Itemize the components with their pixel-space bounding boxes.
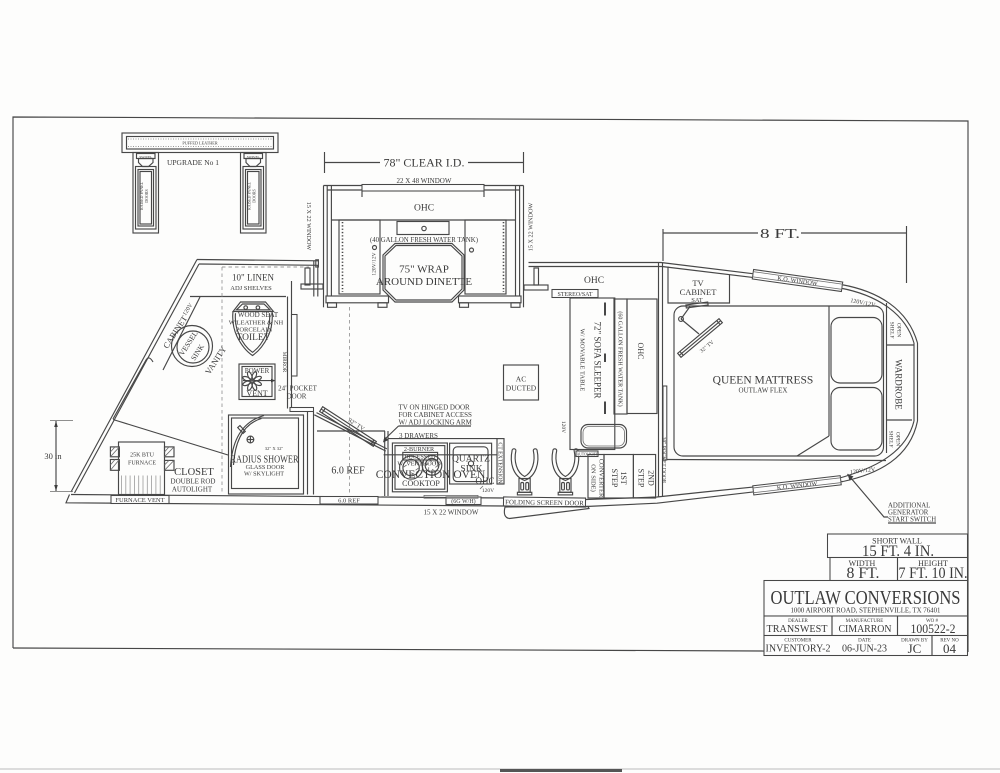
svg-text:OPEN: OPEN — [896, 323, 902, 337]
svg-text:PUFFED LEATHER: PUFFED LEATHER — [182, 141, 217, 146]
svg-text:SINK: SINK — [460, 465, 482, 475]
svg-text:OHC: OHC — [414, 204, 434, 214]
svg-text:ON SIDE): ON SIDE) — [590, 464, 597, 492]
svg-text:8 FT.: 8 FT. — [847, 565, 880, 582]
svg-text:DOUBLE ROD: DOUBLE ROD — [171, 478, 216, 486]
svg-text:8 FT.: 8 FT. — [760, 227, 800, 242]
svg-text:2ND: 2ND — [647, 470, 656, 486]
svg-text:78" CLEAR I.D.: 78" CLEAR I.D. — [384, 158, 465, 170]
svg-text:STEP: STEP — [610, 469, 619, 488]
svg-text:COOKTOP: COOKTOP — [402, 479, 440, 488]
svg-text:SHELF: SHELF — [889, 322, 895, 339]
svg-text:(60 GALLON FRESH WATER TANK): (60 GALLON FRESH WATER TANK) — [617, 311, 624, 406]
svg-text:OUTLAW FLEX: OUTLAW FLEX — [739, 387, 788, 395]
svg-text:120V: 120V — [482, 488, 494, 494]
svg-text:TRANSWEST: TRANSWEST — [767, 623, 828, 635]
svg-text:W/ SKYLIGHT: W/ SKYLIGHT — [244, 471, 284, 478]
svg-text:QUEEN MATTRESS: QUEEN MATTRESS — [713, 375, 814, 387]
svg-text:DOORS: DOORS — [252, 189, 257, 203]
svg-text:120V/12V: 120V/12V — [372, 252, 378, 275]
svg-text:OHC: OHC — [475, 476, 494, 486]
svg-text:FURNACE: FURNACE — [128, 461, 156, 467]
svg-text:INVENTORY-2: INVENTORY-2 — [766, 643, 831, 655]
svg-text:72" SOFA SLEEPER: 72" SOFA SLEEPER — [593, 321, 603, 398]
svg-text:OPEN: OPEN — [895, 432, 901, 446]
svg-text:3 DRAWERS: 3 DRAWERS — [399, 432, 438, 440]
svg-text:JC: JC — [908, 641, 922, 656]
svg-text:W/LEATHER & NH: W/LEATHER & NH — [229, 320, 284, 327]
svg-text:AROUND DINETTE: AROUND DINETTE — [376, 276, 473, 288]
svg-text:24" POCKET: 24" POCKET — [278, 385, 318, 393]
svg-text:W/ ADJ LOCKING ARM: W/ ADJ LOCKING ARM — [399, 419, 473, 427]
svg-text:1000 AIRPORT ROAD, STEPHENVILL: 1000 AIRPORT ROAD, STEPHENVILLE, TX 7640… — [791, 606, 941, 615]
svg-text:RECESSED: RECESSED — [405, 453, 436, 460]
svg-text:W/ VENTHOOD: W/ VENTHOOD — [397, 461, 441, 468]
svg-text:TOILET: TOILET — [236, 333, 269, 343]
svg-text:AC: AC — [516, 375, 526, 384]
svg-text:CIMARRON: CIMARRON — [839, 623, 892, 635]
svg-text:STEREO/SAT: STEREO/SAT — [557, 292, 592, 298]
svg-text:ADJ SHELVES: ADJ SHELVES — [230, 285, 272, 292]
svg-text:32" X 32": 32" X 32" — [265, 446, 284, 451]
svg-text:1ST: 1ST — [619, 471, 628, 484]
svg-text:120V: 120V — [560, 421, 566, 433]
svg-text:DOORS: DOORS — [144, 189, 149, 203]
svg-text:AUTOLIGHT: AUTOLIGHT — [172, 486, 213, 494]
svg-text:(6G W/H): (6G W/H) — [451, 498, 475, 505]
svg-text:W/ MOVABLE TABLE: W/ MOVABLE TABLE — [579, 329, 586, 392]
svg-text:DOOR: DOOR — [287, 393, 307, 401]
svg-text:WARDROBE: WARDROBE — [894, 359, 904, 410]
svg-text:OHC: OHC — [636, 343, 645, 360]
svg-text:OHC: OHC — [584, 276, 604, 286]
svg-text:100522-2: 100522-2 — [911, 621, 956, 636]
svg-text:FURNACE VENT: FURNACE VENT — [115, 497, 164, 504]
svg-text:MIRROR: MIRROR — [281, 352, 287, 373]
svg-text:15 X 22 WINDOW: 15 X 22 WINDOW — [305, 202, 312, 251]
svg-text:CT EXTENSION: CT EXTENSION — [497, 442, 503, 484]
svg-text:DUCTED: DUCTED — [506, 384, 537, 393]
svg-text:GENERATOR: GENERATOR — [888, 510, 929, 517]
svg-text:10" LINEN: 10" LINEN — [232, 273, 274, 283]
svg-text:22 X 48 WINDOW: 22 X 48 WINDOW — [397, 177, 452, 185]
svg-text:6.0 REF: 6.0 REF — [338, 498, 360, 505]
svg-text:75" WRAP: 75" WRAP — [399, 264, 449, 276]
svg-text:CLOSET: CLOSET — [174, 467, 214, 478]
svg-text:06-JUN-23: 06-JUN-23 — [842, 643, 887, 655]
svg-text:CABINET: CABINET — [680, 287, 718, 297]
svg-text:15 X 22 WINDOW: 15 X 22 WINDOW — [528, 203, 535, 252]
svg-text:30" POCKET DOOR: 30" POCKET DOOR — [660, 437, 666, 484]
svg-text:04: 04 — [943, 641, 957, 656]
svg-text:WOOD SEAT: WOOD SEAT — [238, 311, 279, 319]
svg-text:UPGRADE No 1: UPGRADE No 1 — [167, 158, 219, 167]
svg-text:STEP: STEP — [637, 469, 646, 488]
svg-text:25K BTU: 25K BTU — [130, 453, 155, 459]
svg-text:SHELF: SHELF — [888, 431, 894, 448]
svg-text:QUARTZ: QUARTZ — [452, 455, 490, 465]
svg-text:7 FT. 10 IN.: 7 FT. 10 IN. — [899, 565, 968, 582]
svg-text:6.0 REF: 6.0 REF — [331, 466, 365, 477]
svg-text:CONVERTER: CONVERTER — [598, 459, 605, 498]
svg-text:30 in: 30 in — [44, 451, 62, 461]
svg-text:15 X 22 WINDOW: 15 X 22 WINDOW — [424, 509, 479, 517]
svg-text:ADDITIONAL: ADDITIONAL — [888, 503, 930, 510]
